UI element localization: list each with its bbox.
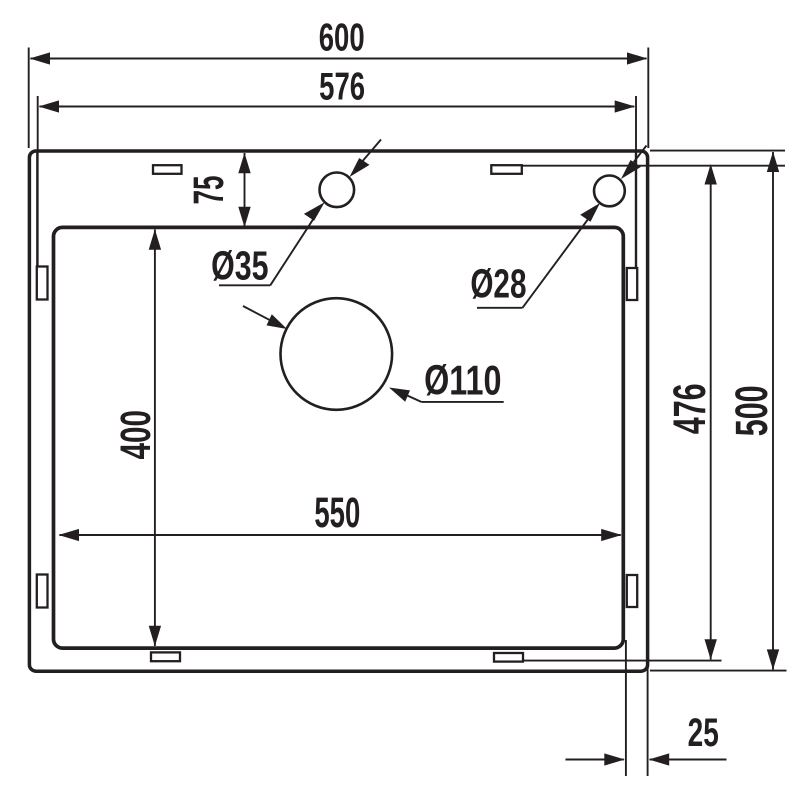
svg-text:Ø110: Ø110 <box>424 356 501 403</box>
svg-text:400: 400 <box>112 410 160 460</box>
svg-text:Ø28: Ø28 <box>470 261 526 307</box>
svg-text:500: 500 <box>727 385 777 436</box>
svg-text:550: 550 <box>314 488 360 537</box>
svg-text:Ø35: Ø35 <box>211 242 268 289</box>
svg-text:476: 476 <box>665 383 715 434</box>
svg-text:75: 75 <box>184 176 232 205</box>
svg-text:600: 600 <box>319 16 365 60</box>
svg-text:25: 25 <box>688 711 719 755</box>
svg-text:576: 576 <box>319 65 365 109</box>
